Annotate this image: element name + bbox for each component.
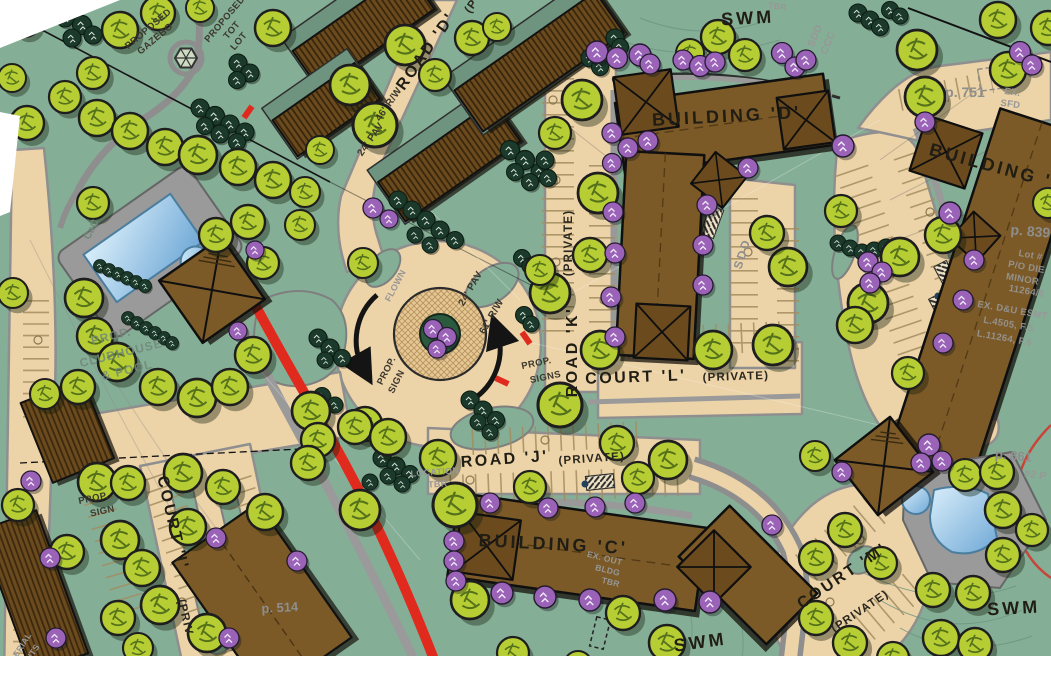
label-court-l-private: (PRIVATE) (702, 370, 769, 384)
label-court-l: COURT 'L' (585, 367, 687, 388)
label-road-k: ROAD 'K' (564, 307, 581, 398)
label-road-k-private: (PRIVATE) (563, 210, 575, 277)
label-swm-southeast: SWM (987, 597, 1041, 620)
site-plan-rendering: SWM BUILDING 'D' BUILDING 'E' BUILDING '… (0, 0, 1051, 680)
label-p861: p. 861 (994, 446, 1032, 464)
label-ex-sfd-1: EX. (1004, 86, 1022, 99)
label-p751: p. 751 (945, 84, 985, 100)
site-plan-page: SWM BUILDING 'D' BUILDING 'E' BUILDING '… (0, 0, 1051, 680)
label-location-2: TBR (428, 478, 448, 489)
label-p514: p. 514 (261, 599, 299, 616)
label-swm-north: SWM (721, 7, 775, 30)
